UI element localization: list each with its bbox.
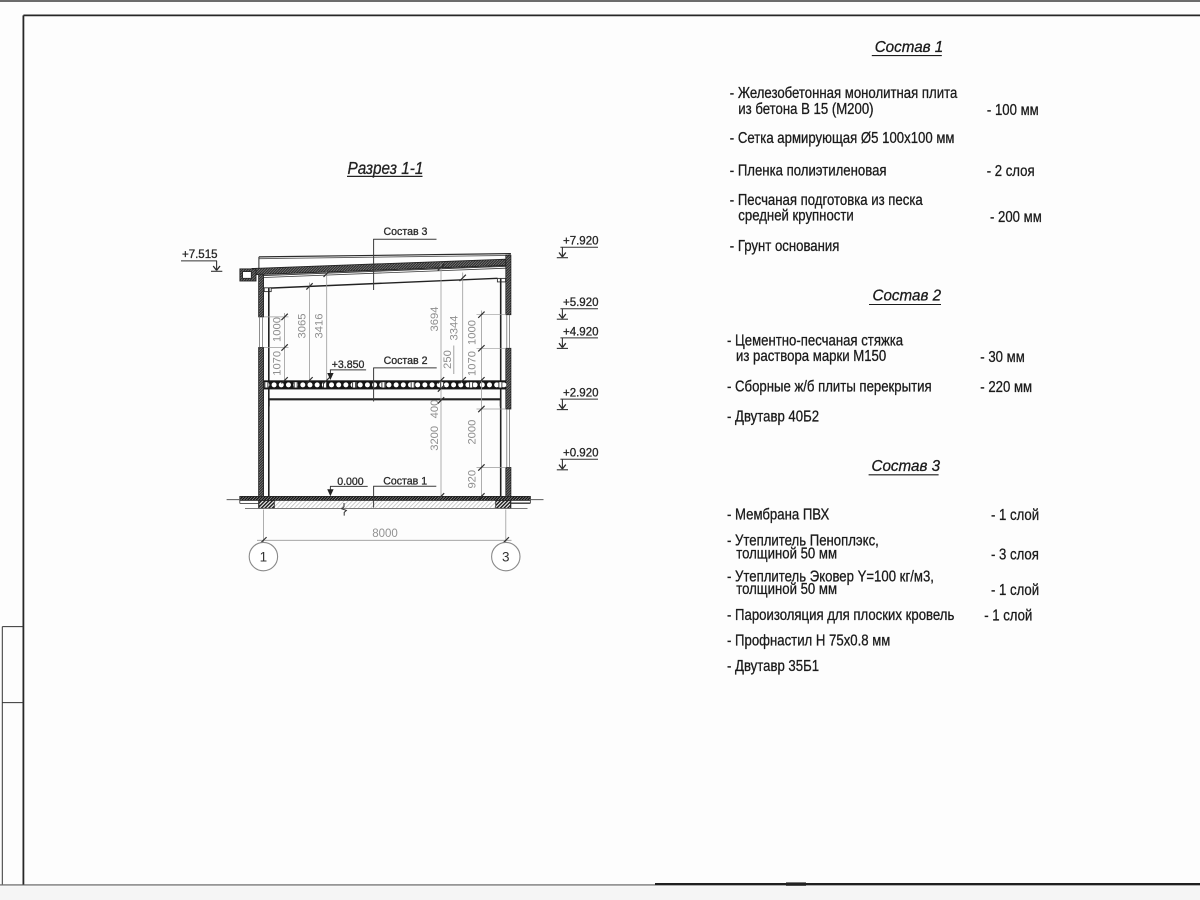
svg-text:средней крупности: средней крупности	[738, 207, 853, 224]
svg-text:- Двутавр 35Б1: - Двутавр 35Б1	[727, 658, 819, 675]
svg-text:1000: 1000	[272, 317, 284, 342]
svg-text:- 100 мм: - 100 мм	[987, 102, 1039, 119]
svg-text:1070: 1070	[467, 351, 479, 376]
svg-text:Состав 1: Состав 1	[383, 475, 427, 487]
svg-text:1000: 1000	[467, 320, 479, 345]
svg-text:- Цементно-песчаная стяжка: - Цементно-песчаная стяжка	[727, 332, 903, 349]
svg-text:Состав 2: Состав 2	[384, 355, 428, 367]
svg-text:- 200 мм: - 200 мм	[990, 209, 1042, 226]
svg-text:+5.920: +5.920	[563, 297, 599, 309]
svg-text:- Железобетонная монолитная п: - Железобетонная монолитная плита	[730, 85, 957, 102]
svg-text:- 1 слой: - 1 слой	[991, 582, 1039, 599]
svg-text:- Профнастил Н 75х0.8 мм: - Профнастил Н 75х0.8 мм	[727, 632, 890, 649]
svg-text:1: 1	[260, 549, 268, 564]
svg-text:- 1 слой: - 1 слой	[991, 507, 1039, 524]
svg-text:3200: 3200	[429, 426, 441, 451]
svg-text:250: 250	[442, 350, 454, 369]
svg-text:+7.920: +7.920	[563, 236, 599, 248]
svg-text:- Пленка полиэтиленовая: - Пленка полиэтиленовая	[730, 162, 887, 179]
svg-text:3344: 3344	[449, 316, 461, 341]
svg-text:2000: 2000	[467, 420, 479, 445]
svg-text:из бетона В 15 (М200): из бетона В 15 (М200)	[738, 101, 873, 118]
svg-text:из раствора марки М150: из раствора марки М150	[736, 348, 886, 365]
svg-text:1070: 1070	[272, 351, 284, 376]
svg-text:+0.920: +0.920	[563, 448, 599, 460]
svg-text:- Двутавр 40Б2: - Двутавр 40Б2	[727, 408, 819, 425]
svg-text:8000: 8000	[372, 528, 398, 540]
svg-text:3416: 3416	[314, 314, 326, 339]
svg-text:- Мембрана ПВХ: - Мембрана ПВХ	[727, 506, 830, 523]
svg-text:+4.920: +4.920	[563, 326, 599, 338]
svg-text:Состав 3: Состав 3	[872, 458, 941, 475]
svg-text:920: 920	[467, 470, 479, 489]
svg-text:- 3 слоя: - 3 слоя	[991, 546, 1039, 563]
svg-text:- 30 мм: - 30 мм	[980, 349, 1024, 366]
svg-text:- 220 мм: - 220 мм	[980, 379, 1032, 396]
svg-text:- Сетка армирующая Ø5 100х100: - Сетка армирующая Ø5 100х100 мм	[730, 130, 955, 147]
svg-text:3065: 3065	[296, 314, 308, 339]
svg-text:- 1 слой: - 1 слой	[984, 608, 1032, 625]
svg-text:Состав 1: Состав 1	[875, 38, 944, 55]
svg-text:Состав 2: Состав 2	[873, 287, 942, 304]
svg-text:Состав 3: Состав 3	[384, 226, 428, 238]
svg-text:- Грунт основания: - Грунт основания	[730, 238, 840, 255]
svg-text:- 2 слоя: - 2 слоя	[987, 163, 1035, 180]
svg-text:400: 400	[429, 400, 441, 419]
svg-text:толщиной 50 мм: толщиной 50 мм	[736, 546, 837, 563]
svg-text:толщиной 50 мм: толщиной 50 мм	[736, 581, 837, 598]
svg-text:+2.920: +2.920	[563, 388, 599, 400]
svg-text:+7.515: +7.515	[182, 249, 218, 261]
svg-text:3694: 3694	[429, 307, 441, 332]
svg-text:- Сборные ж/б плиты перекрытия: - Сборные ж/б плиты перекрытия	[727, 378, 932, 395]
svg-text:+3.850: +3.850	[332, 359, 365, 371]
svg-text:Разрез 1-1: Разрез 1-1	[348, 159, 424, 178]
svg-text:3: 3	[502, 549, 510, 564]
svg-text:- Пароизоляция для плоских кро: - Пароизоляция для плоских кровель	[727, 607, 954, 624]
